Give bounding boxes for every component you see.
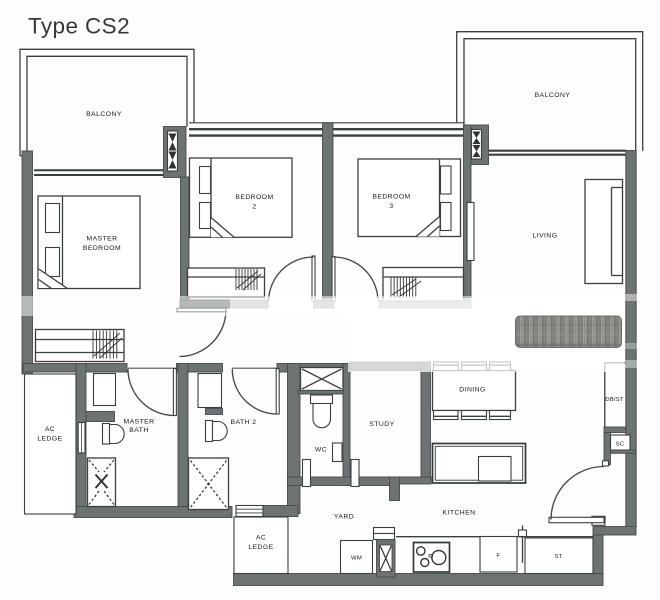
svg-text:MASTER: MASTER: [123, 418, 154, 425]
svg-text:LEDGE: LEDGE: [37, 436, 62, 443]
svg-text:BEDROOM: BEDROOM: [372, 193, 410, 200]
svg-text:LIVING: LIVING: [533, 232, 558, 239]
svg-text:SC: SC: [616, 441, 625, 447]
svg-text:BEDROOM: BEDROOM: [83, 245, 121, 252]
svg-text:LEDGE: LEDGE: [248, 544, 273, 551]
svg-text:2: 2: [252, 203, 256, 210]
svg-text:STUDY: STUDY: [369, 421, 394, 428]
svg-text:WC: WC: [315, 446, 327, 453]
svg-text:DINING: DINING: [459, 386, 486, 393]
svg-text:F: F: [496, 553, 500, 559]
svg-text:AC: AC: [45, 426, 55, 433]
svg-text:Type CS2: Type CS2: [28, 14, 130, 39]
svg-text:BATH 2: BATH 2: [231, 419, 257, 426]
svg-text:DB/ST: DB/ST: [605, 397, 624, 403]
svg-text:ST: ST: [554, 554, 562, 560]
svg-text:AC: AC: [256, 535, 266, 542]
svg-text:WM: WM: [351, 556, 362, 562]
svg-text:BATH: BATH: [129, 427, 148, 434]
svg-text:3: 3: [389, 203, 393, 210]
svg-text:YARD: YARD: [334, 513, 354, 520]
svg-text:BALCONY: BALCONY: [86, 111, 122, 118]
svg-text:MASTER: MASTER: [86, 235, 117, 242]
svg-text:KITCHEN: KITCHEN: [443, 509, 476, 516]
svg-text:BALCONY: BALCONY: [535, 92, 571, 99]
svg-text:BEDROOM: BEDROOM: [235, 194, 273, 201]
